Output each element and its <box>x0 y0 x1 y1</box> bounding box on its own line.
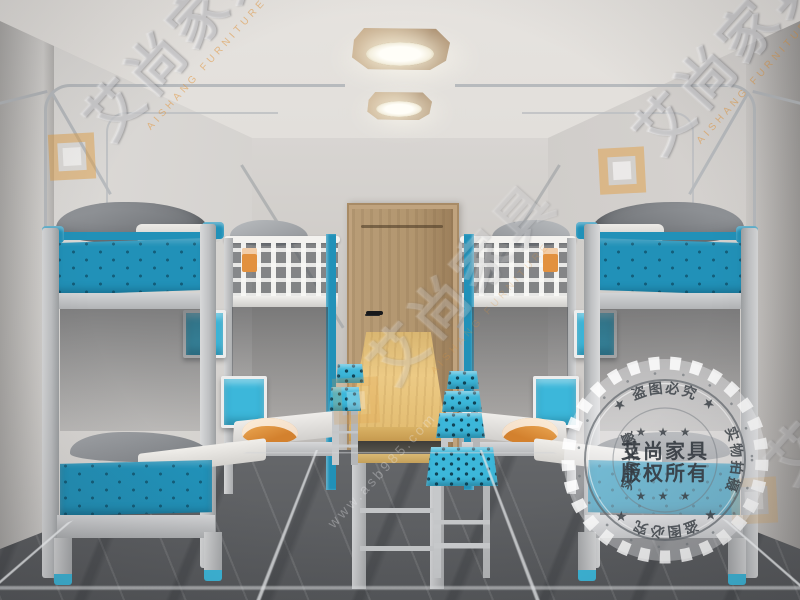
bed-leg <box>204 532 222 574</box>
stamp-title: 艾尚家具 <box>621 439 709 463</box>
table-brace <box>360 508 438 513</box>
stamp-stars-top: ★ ★ ★ <box>636 425 695 439</box>
bed-foot-cap <box>204 570 222 581</box>
bed-leg <box>54 538 72 578</box>
bunk-beam <box>50 293 212 309</box>
lamp-diffuser <box>366 42 434 66</box>
table-leg-left <box>352 463 366 589</box>
stool-right-4 <box>426 447 498 486</box>
guard-rail-top <box>224 236 340 243</box>
stool-left-1 <box>336 364 364 383</box>
ceiling-lamp-small <box>366 92 432 120</box>
stool-right-1 <box>447 371 479 389</box>
stool-left-2 <box>329 387 361 411</box>
stool-right-3 <box>436 413 485 438</box>
bed-base-band <box>57 515 215 538</box>
door-top-groove <box>361 225 443 228</box>
ceiling-lamp-large <box>350 28 450 70</box>
top-bunk-end-panel <box>594 238 746 295</box>
stool-top <box>329 387 361 411</box>
bunk-deck-band <box>462 296 576 307</box>
copyright-stamp: ★ 盗图必究 ★ ★ 盗图必究 ★ 实物拍摄 实物拍摄 ★ ★ ★ 艾尚家具 版… <box>557 352 773 568</box>
stool-top <box>442 391 482 412</box>
bed-foot-cap <box>728 574 746 585</box>
stool-legs <box>332 411 358 465</box>
towel <box>242 248 257 272</box>
bottom-bunk-end-panel <box>60 460 212 516</box>
stool-right-2 <box>442 391 482 412</box>
stool-top <box>336 364 364 383</box>
stamp-stars-bottom: ★ ★ ★ <box>636 489 695 503</box>
lamp-diffuser <box>376 101 422 117</box>
stamp-subtitle: 版权所有 <box>621 461 709 485</box>
bunk-deck-band <box>224 296 338 307</box>
bed-foot-cap <box>54 574 72 585</box>
table-brace <box>360 546 438 551</box>
dormitory-room-render: 艾尚家具 AISHANG FURNITURE 艾尚家具 AISHANG FURN… <box>0 0 800 600</box>
stool-top <box>447 371 479 389</box>
stool-top <box>436 413 485 438</box>
stool-legs <box>434 486 490 578</box>
bunk-beam <box>588 293 750 309</box>
bed-foot-cap <box>578 570 596 581</box>
guard-rail-top <box>460 236 576 243</box>
stool-top <box>426 447 498 486</box>
table-edge <box>349 427 446 441</box>
bunk-bed-left-near <box>40 198 230 588</box>
towel <box>543 248 558 272</box>
door-handle <box>366 311 383 315</box>
top-bunk-end-panel <box>54 238 206 295</box>
